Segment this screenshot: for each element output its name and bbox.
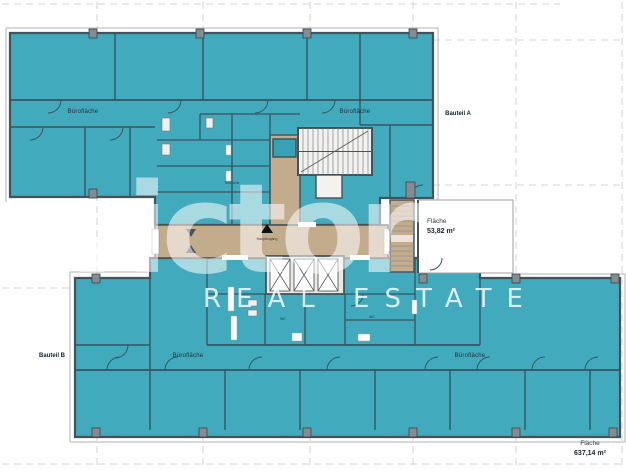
terrace-area-value: 53,82 m² xyxy=(427,227,455,236)
escape-stair xyxy=(390,200,414,272)
label-wc-left: WC xyxy=(280,317,286,321)
label-kitchen: Teeküche xyxy=(225,181,240,185)
label-office-top-left: Bürofläche xyxy=(68,109,99,116)
label-wc-right: WC xyxy=(369,315,375,319)
shaft xyxy=(273,139,296,157)
label-office-bottom-left: Bürofläche xyxy=(173,353,204,360)
terrace xyxy=(418,200,513,273)
total-area-caption: Fläche xyxy=(558,440,622,449)
label-bauteil-b: Bauteil B xyxy=(39,353,65,360)
floor-plan-page: victor REAL ESTATE Bürofläche Bürofläche… xyxy=(0,0,626,470)
floor-plan-drawing xyxy=(0,0,626,470)
label-entrance: Hauptzugang xyxy=(257,237,278,241)
building-b xyxy=(75,258,620,437)
total-area-label: Fläche 637,14 m² xyxy=(558,440,622,458)
label-office-top-right: Bürofläche xyxy=(340,109,371,116)
total-area-value: 637,14 m² xyxy=(558,449,622,458)
terrace-area-label: Fläche 53,82 m² xyxy=(427,218,455,236)
terrace-area-caption: Fläche xyxy=(427,218,455,227)
label-office-bottom-right: Bürofläche xyxy=(455,353,486,360)
label-bauteil-a: Bauteil A xyxy=(445,111,471,118)
